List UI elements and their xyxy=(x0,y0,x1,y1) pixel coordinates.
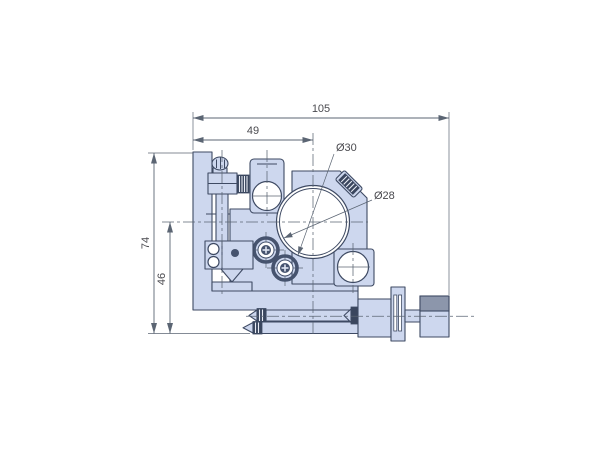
dim-clear-aperture-label: Ø28 xyxy=(374,190,395,202)
dim-total-width-label: 105 xyxy=(312,103,330,115)
dim-axis-offset: 49 xyxy=(193,125,313,140)
dim-bore-outer-label: Ø30 xyxy=(336,142,357,154)
dim-axis-to-bottom: 46 xyxy=(156,222,170,334)
dim-axis-to-bottom-label: 46 xyxy=(156,273,168,285)
right-clamp-block xyxy=(334,249,374,286)
technical-drawing: 105 49 74 46 Ø30 Ø28 xyxy=(0,0,600,450)
drawing-canvas: 105 49 74 46 Ø30 Ø28 xyxy=(0,0,600,450)
dim-total-height-label: 74 xyxy=(140,237,152,249)
dim-axis-offset-label: 49 xyxy=(247,125,259,137)
